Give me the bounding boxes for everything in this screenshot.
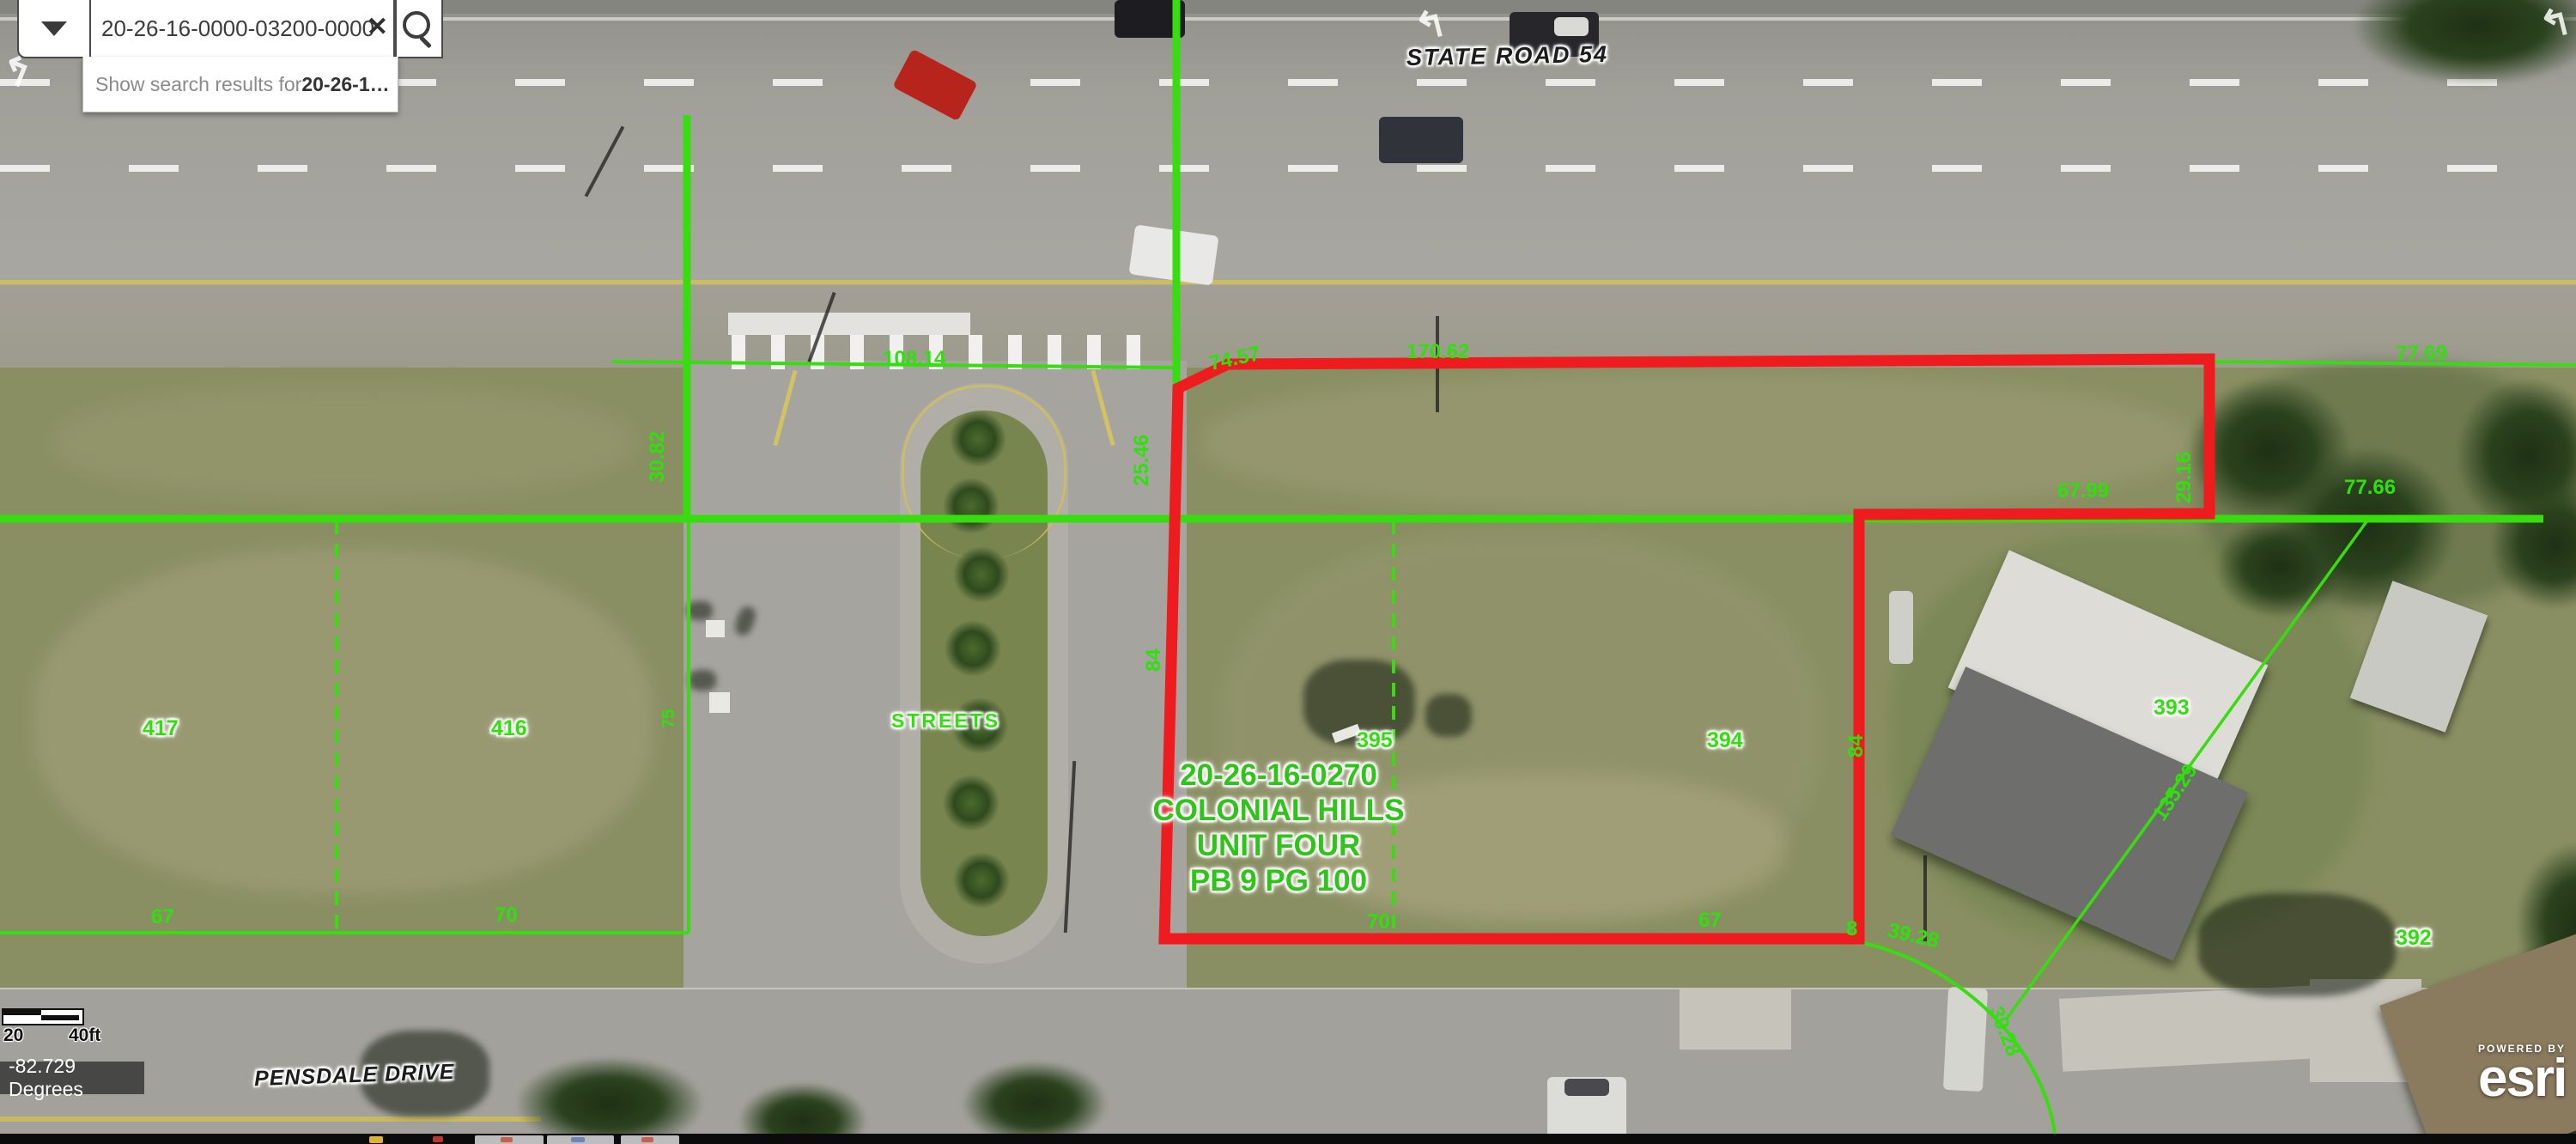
suggestion-term: 20-26-1… <box>301 73 389 96</box>
suggestion-text: Show search results for <box>83 73 301 96</box>
subdivision-line: COLONIAL HILLS <box>1121 793 1436 828</box>
taskbar-button-icon <box>641 1137 653 1142</box>
search-button[interactable] <box>395 0 443 58</box>
esri-logo: esri <box>2478 1055 2566 1103</box>
dim-label: 84 <box>1142 648 1166 672</box>
palm-tree <box>953 852 1010 909</box>
dim-label: 67 <box>151 905 174 929</box>
subdivision-label: 20-26-16-0270 COLONIAL HILLS UNIT FOUR P… <box>1121 758 1436 898</box>
dim-label: 67 <box>1698 909 1722 933</box>
tree-canopy <box>962 1061 1108 1144</box>
crosswalk <box>1087 335 1101 369</box>
tree-canopy <box>515 1056 704 1144</box>
palm-tree <box>945 620 1001 677</box>
crosswalk <box>1008 335 1022 369</box>
lot-number: 395 <box>1357 728 1393 753</box>
search-input-value: 20-26-16-0000-03200-0000 <box>91 15 374 42</box>
white-vehicle <box>1943 987 1988 1092</box>
dim-label: 75 <box>659 709 679 728</box>
taskbar-icon[interactable] <box>369 1136 383 1143</box>
street-label-state-road-54: STATE ROAD 54 <box>1406 41 1609 71</box>
crosswalk <box>850 335 864 369</box>
driveway-apron <box>1680 989 1791 1050</box>
dim-label: 70 <box>1367 910 1390 934</box>
taskbar-button-icon <box>501 1137 513 1142</box>
lot-number: 416 <box>491 716 527 741</box>
subdivision-line: 20-26-16-0270 <box>1121 758 1436 793</box>
scale-segment <box>3 1010 41 1015</box>
dim-label: 67.99 <box>2057 479 2109 503</box>
dim-label: 29.16 <box>2172 452 2196 503</box>
scale-segment <box>41 1015 79 1020</box>
crosswalk <box>732 335 745 369</box>
scale-bar <box>2 1008 84 1025</box>
taskbar-button[interactable] <box>621 1135 679 1144</box>
map-canvas[interactable]: ↰ ↰ ↰ 74.57 170.62 77.69 108.14 30.82 25… <box>0 0 2576 1144</box>
bin-shadow <box>689 670 716 691</box>
palm-tree <box>943 775 999 831</box>
road-south-shoulder <box>0 285 2576 368</box>
lane-dashes <box>0 165 2576 172</box>
dim-label: 8 <box>1846 917 1857 941</box>
dark-suv <box>1379 117 1463 163</box>
lot-number: 393 <box>2154 696 2190 721</box>
search-suggestion-item[interactable]: Show search results for 20-26-1… <box>82 57 398 113</box>
coordinate-value: -82.729 Degrees <box>0 1055 144 1101</box>
shadow-spot <box>1425 694 1472 737</box>
dim-label: 25.46 <box>1130 435 1154 486</box>
taskbar-button-icon <box>571 1137 585 1142</box>
stop-bar <box>728 313 970 335</box>
lot-number: 394 <box>1707 728 1743 753</box>
car-windshield <box>1564 1079 1609 1096</box>
dim-label: 30.82 <box>646 431 670 483</box>
grass-patch <box>1202 374 2190 511</box>
taskbar-button[interactable] <box>475 1135 544 1144</box>
car-windshield <box>1554 17 1589 36</box>
esri-attribution: POWERED BY esri <box>2478 1043 2566 1103</box>
crosswalk <box>771 335 785 369</box>
coordinate-readout: -82.729 Degrees <box>0 1062 144 1094</box>
driveway-apron <box>2059 985 2320 1072</box>
trash-bin <box>709 692 730 713</box>
dim-label: 108.14 <box>883 347 945 371</box>
taskbar-strip <box>0 1134 2576 1144</box>
scale-label-20: 20 <box>3 1025 23 1046</box>
chevron-down-icon <box>41 21 67 36</box>
dim-label: 77.69 <box>2396 342 2447 366</box>
utility-pole <box>1436 316 1439 412</box>
dim-label: 77.66 <box>2344 476 2396 500</box>
bin-shadow <box>687 601 713 620</box>
lot-number: 392 <box>2396 926 2432 951</box>
yellow-edge-line <box>0 280 2576 284</box>
trash-bin <box>706 620 725 637</box>
palm-tree <box>943 478 999 534</box>
tree-shadow <box>2198 893 2396 996</box>
grass-patch <box>34 550 653 893</box>
street-label-streets: STREETS <box>891 709 1000 733</box>
subdivision-line: UNIT FOUR <box>1121 828 1436 863</box>
dim-label: 170.62 <box>1406 340 1469 364</box>
search-input[interactable]: 20-26-16-0000-03200-0000 ✕ <box>89 0 395 58</box>
tree-canopy <box>2215 515 2344 618</box>
dim-label: 70 <box>495 904 518 928</box>
palm-tree <box>953 546 1010 603</box>
parked-vehicle <box>1889 591 1913 664</box>
taskbar-icon[interactable] <box>433 1136 443 1142</box>
crosswalk <box>969 335 982 369</box>
search-dropdown-button[interactable] <box>17 0 91 58</box>
crosswalk <box>1048 335 1061 369</box>
pensdale-center-line <box>0 1117 541 1122</box>
subdivision-line: PB 9 PG 100 <box>1121 863 1436 898</box>
grass-patch <box>52 386 635 498</box>
palm-tree <box>950 411 1006 467</box>
dim-label: 39.28 <box>1886 919 1941 954</box>
dim-label: 84 <box>1844 734 1868 758</box>
taskbar-button[interactable] <box>547 1135 614 1144</box>
clear-search-icon[interactable]: ✕ <box>367 12 388 42</box>
crosswalk <box>1127 335 1140 369</box>
lot-number: 417 <box>143 716 179 741</box>
scale-label-40ft: 40ft <box>69 1025 100 1046</box>
search-icon <box>403 11 430 39</box>
black-sedan <box>1115 0 1185 38</box>
